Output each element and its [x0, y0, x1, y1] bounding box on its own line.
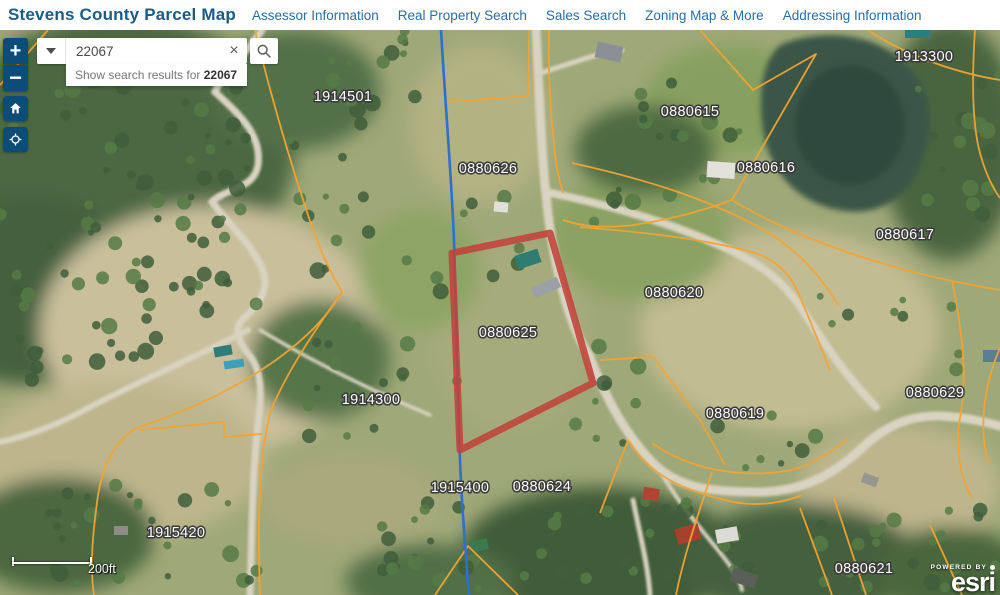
suggestion-term: 22067 [204, 68, 237, 82]
parcel-label: 1913300 [895, 49, 954, 65]
map-canvas[interactable]: 1914501191330008806150880626088061608806… [0, 30, 1000, 595]
nav-link-real-property-search[interactable]: Real Property Search [398, 8, 527, 23]
clear-search-button[interactable]: × [221, 38, 247, 64]
parcel-label: 1914501 [314, 89, 373, 105]
parcel-label: 0880619 [706, 406, 765, 422]
app-header: Stevens County Parcel Map Assessor Infor… [0, 0, 1000, 30]
parcel-label: 0880624 [513, 479, 572, 495]
locate-icon [9, 131, 22, 148]
zoom-in-button[interactable]: + [3, 38, 28, 64]
nav-link-assessor-information[interactable]: Assessor Information [252, 8, 379, 23]
parcel-label: 0880616 [737, 160, 796, 176]
parcel-label: 0880620 [645, 285, 704, 301]
parcel-label: 1915420 [147, 525, 206, 541]
search-icon [256, 43, 272, 59]
chevron-down-icon [46, 48, 56, 54]
nav-link-sales-search[interactable]: Sales Search [546, 8, 626, 23]
parcel-label: 0880625 [479, 325, 538, 341]
nav-link-zoning-map-more[interactable]: Zoning Map & More [645, 8, 764, 23]
search-dropdown-button[interactable] [37, 38, 66, 64]
parcel-label: 0880617 [876, 227, 935, 243]
search-suggestion[interactable]: Show search results for 22067 [66, 64, 247, 86]
parcel-label: 1914300 [342, 392, 401, 408]
page-title: Stevens County Parcel Map [8, 5, 236, 25]
parcel-label: 0880626 [459, 161, 518, 177]
suggestion-text: Show search results for [75, 68, 204, 82]
home-icon [9, 101, 22, 116]
main-nav: Assessor InformationReal Property Search… [252, 8, 941, 23]
parcel-label: 1915400 [431, 480, 490, 496]
search-input[interactable] [66, 44, 221, 59]
map-container[interactable]: 1914501191330008806150880626088061608806… [0, 30, 1000, 595]
parcel-label: 0880615 [661, 104, 720, 120]
search-submit-button[interactable] [250, 38, 278, 64]
locate-button[interactable] [3, 127, 28, 152]
home-button[interactable] [3, 96, 28, 121]
zoom-out-button[interactable]: − [3, 65, 28, 91]
parcel-label: 0880621 [835, 561, 894, 577]
search-widget: × [37, 38, 247, 64]
parcel-label: 0880629 [906, 385, 965, 401]
nav-link-addressing-information[interactable]: Addressing Information [783, 8, 922, 23]
